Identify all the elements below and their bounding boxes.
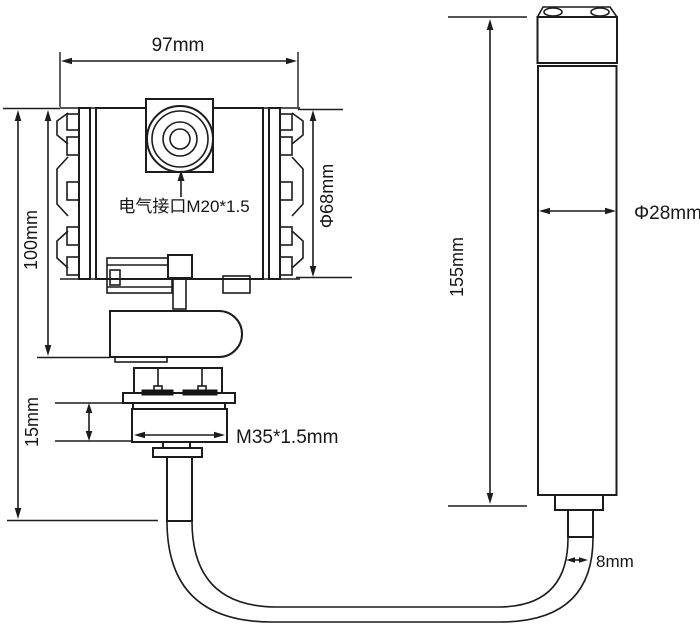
dim-cap-diameter-label: Φ68mm [317,164,337,228]
probe-top-cap [538,17,618,63]
mounting-stem [167,457,192,521]
dim-probe-length: 155mm [447,17,527,506]
probe-drawing [538,7,618,537]
transmitter-head-drawing [57,99,303,521]
electrical-port-label: 电气接口M20*1.5 [118,197,249,216]
dim-head-height-label: 100mm [21,210,41,270]
probe-body [538,66,617,495]
dim-head-width: 97mm [60,35,298,107]
dim-cap-diameter: Φ68mm [296,110,352,278]
dim-cable-diameter-label: 8mm [596,552,634,571]
cable-drawing [167,521,593,622]
thread-spec-label: M35*1.5mm [236,427,338,448]
probe-bottom-step [555,495,603,510]
probe-cap-hole [544,8,562,16]
dim-head-width-label: 97mm [152,35,205,56]
dim-thread-length-label: 15mm [22,397,42,447]
electrical-connector-port [146,99,213,172]
probe-cap-hole [591,8,609,16]
probe-cable-neck [568,510,593,537]
diagram-canvas: 97mm 100mm Φ68mm 电气接口M20*1.5 15mm [0,0,700,629]
dimension-drawing-svg: 97mm 100mm Φ68mm 电气接口M20*1.5 15mm [0,0,700,629]
dim-probe-diameter-label: Φ28mm [634,203,700,224]
thread-connection-stack [123,368,235,521]
housing-right-end-cap [263,108,303,279]
dim-thread-length: 15mm [22,397,131,447]
housing-left-end-cap [57,108,96,279]
process-connection-capsule [110,311,242,357]
dim-probe-length-label: 155mm [447,237,467,297]
dim-cable-diameter: 8mm [566,552,634,571]
m35-thread-nut [132,409,227,442]
capsule-step [115,357,167,362]
